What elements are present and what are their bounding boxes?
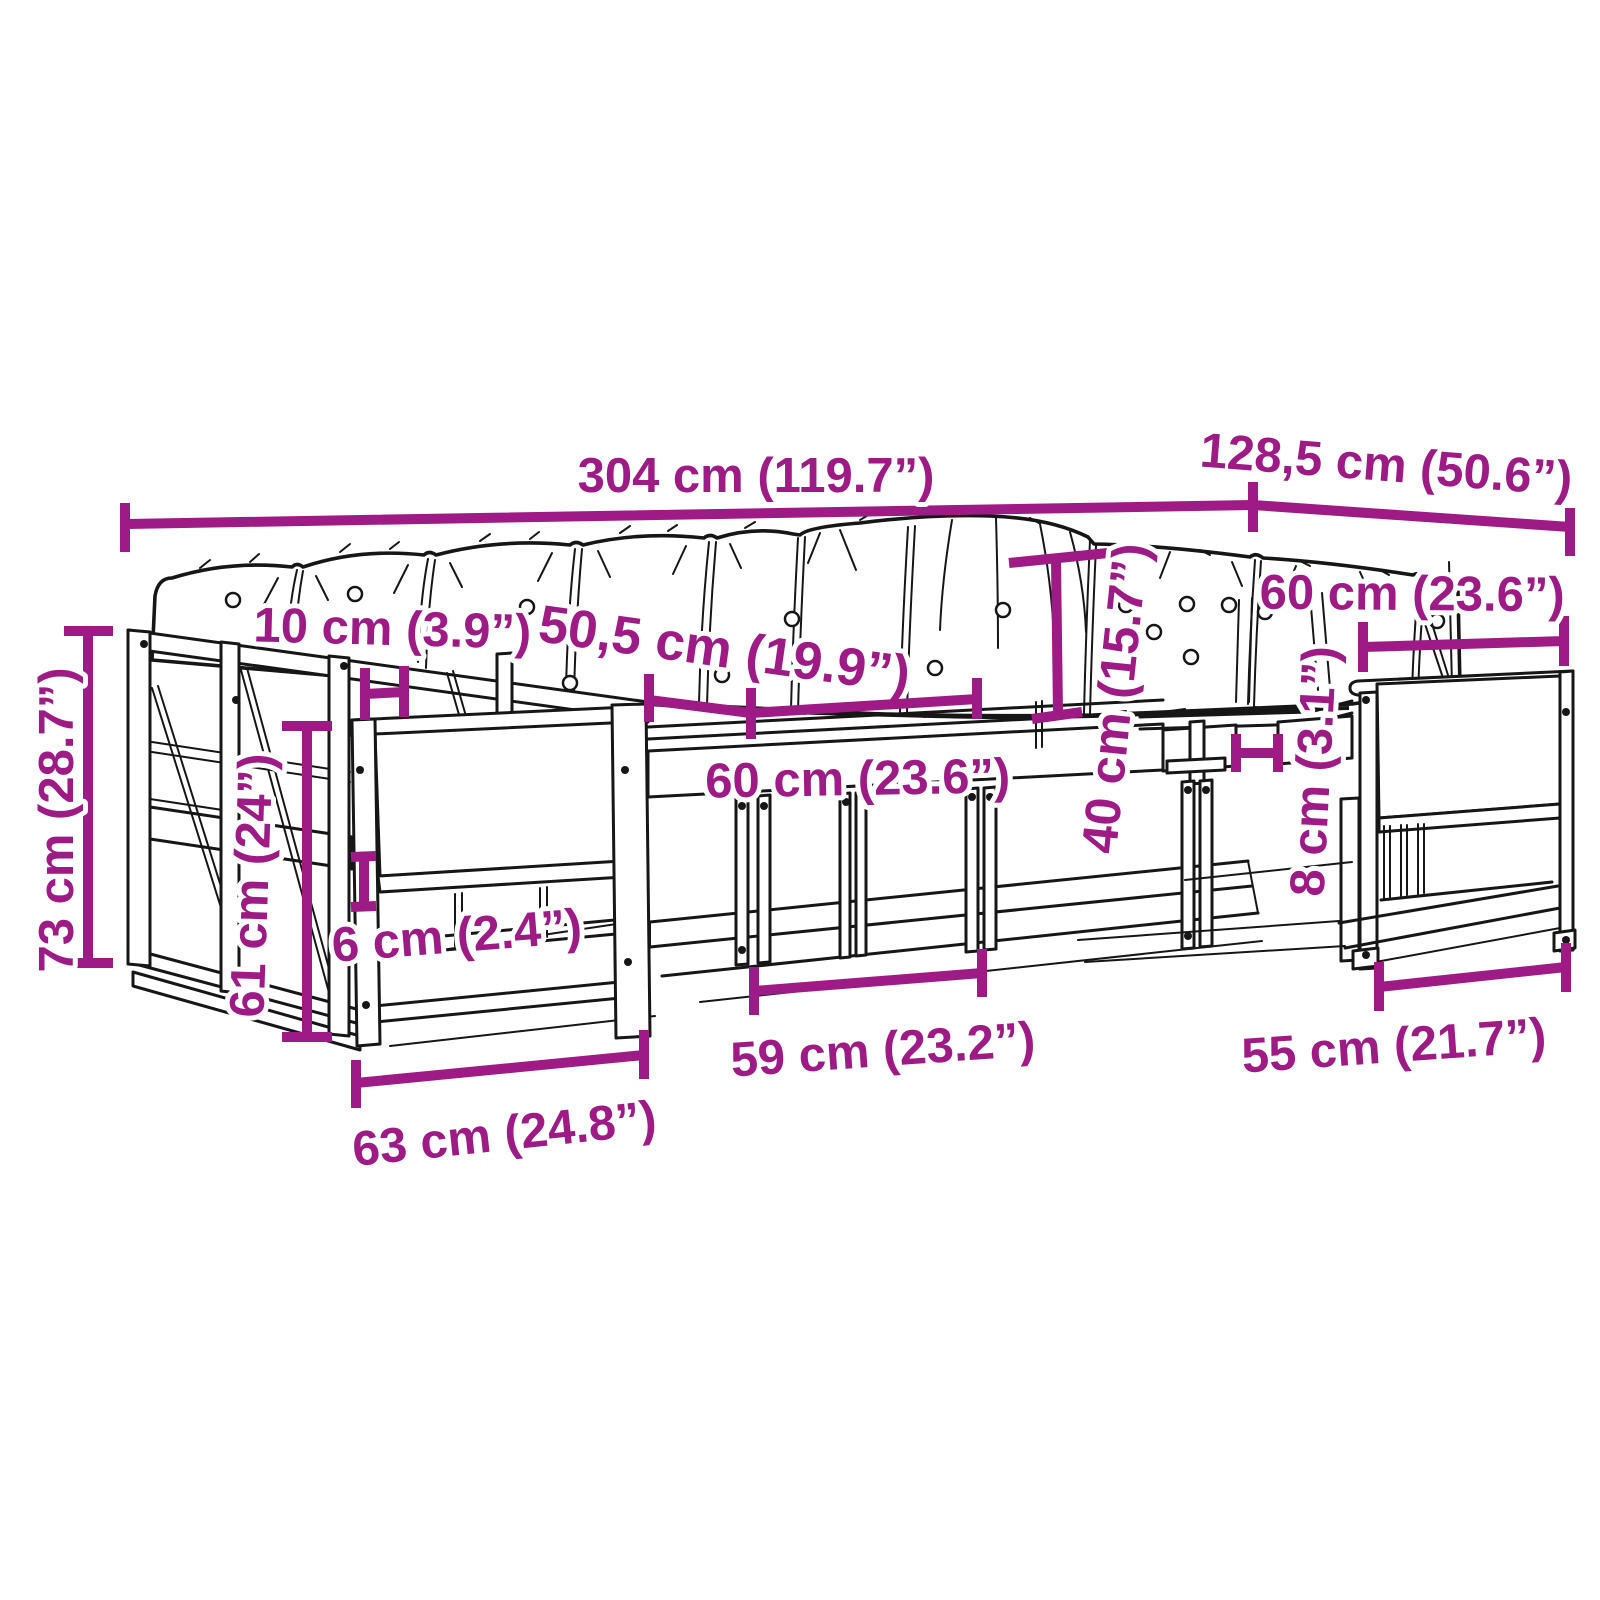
svg-text:60 cm (23.6”): 60 cm (23.6”)	[1259, 566, 1565, 623]
svg-text:61 cm (24”): 61 cm (24”)	[220, 752, 283, 1018]
svg-text:73 cm (28.7”): 73 cm (28.7”)	[30, 667, 84, 972]
svg-text:304 cm (119.7”): 304 cm (119.7”)	[578, 449, 935, 503]
svg-text:60 cm (23.6”): 60 cm (23.6”)	[705, 749, 1011, 808]
svg-text:10 cm (3.9”): 10 cm (3.9”)	[253, 598, 532, 659]
